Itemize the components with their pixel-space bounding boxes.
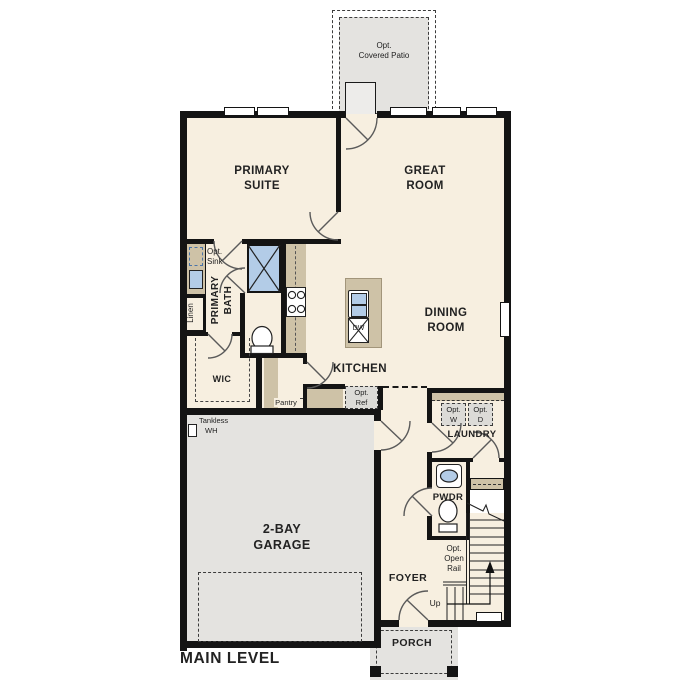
laundry-label: LAUNDRY xyxy=(437,429,507,441)
up-label: Up xyxy=(425,598,445,609)
tankless-wh-label: Tankless WH xyxy=(199,416,239,436)
porch-label: PORCH xyxy=(382,637,442,651)
garage-label: 2-BAY GARAGE xyxy=(232,521,332,554)
pwdr-sink-bowl-icon xyxy=(441,470,458,482)
kitchen-label: KITCHEN xyxy=(320,362,400,377)
door-leaf xyxy=(318,212,338,232)
shower-x-lines xyxy=(248,245,280,292)
dishwasher-x-lines xyxy=(349,319,368,342)
opt-sink-label: Opt. Sink xyxy=(207,247,233,267)
pwdr-toilet-icon xyxy=(439,500,457,532)
linen-label: Linen xyxy=(186,288,200,338)
door-leaf xyxy=(346,118,368,140)
wic-label: WIC xyxy=(197,374,247,386)
primary-suite-label: PRIMARY SUITE xyxy=(212,164,312,194)
pantry-label: Pantry xyxy=(266,398,306,408)
stove-burners-icon xyxy=(288,291,304,312)
door-leaf xyxy=(473,440,491,458)
foyer-label: FOYER xyxy=(378,572,438,586)
main-level-title: MAIN LEVEL xyxy=(180,649,320,669)
pwdr-label: PWDR xyxy=(423,492,473,504)
door-leaf xyxy=(381,421,402,441)
opt-open-rail-label: Opt. Open Rail xyxy=(430,544,478,574)
bath-toilet-icon xyxy=(251,327,273,354)
primary-bath-label: PRIMARY BATH xyxy=(209,260,235,340)
floor-plan: Opt. Covered Patio xyxy=(0,0,687,687)
plan-linework xyxy=(0,0,687,687)
great-room-label: GREAT ROOM xyxy=(375,164,475,194)
dining-room-label: DINING ROOM xyxy=(396,306,496,336)
